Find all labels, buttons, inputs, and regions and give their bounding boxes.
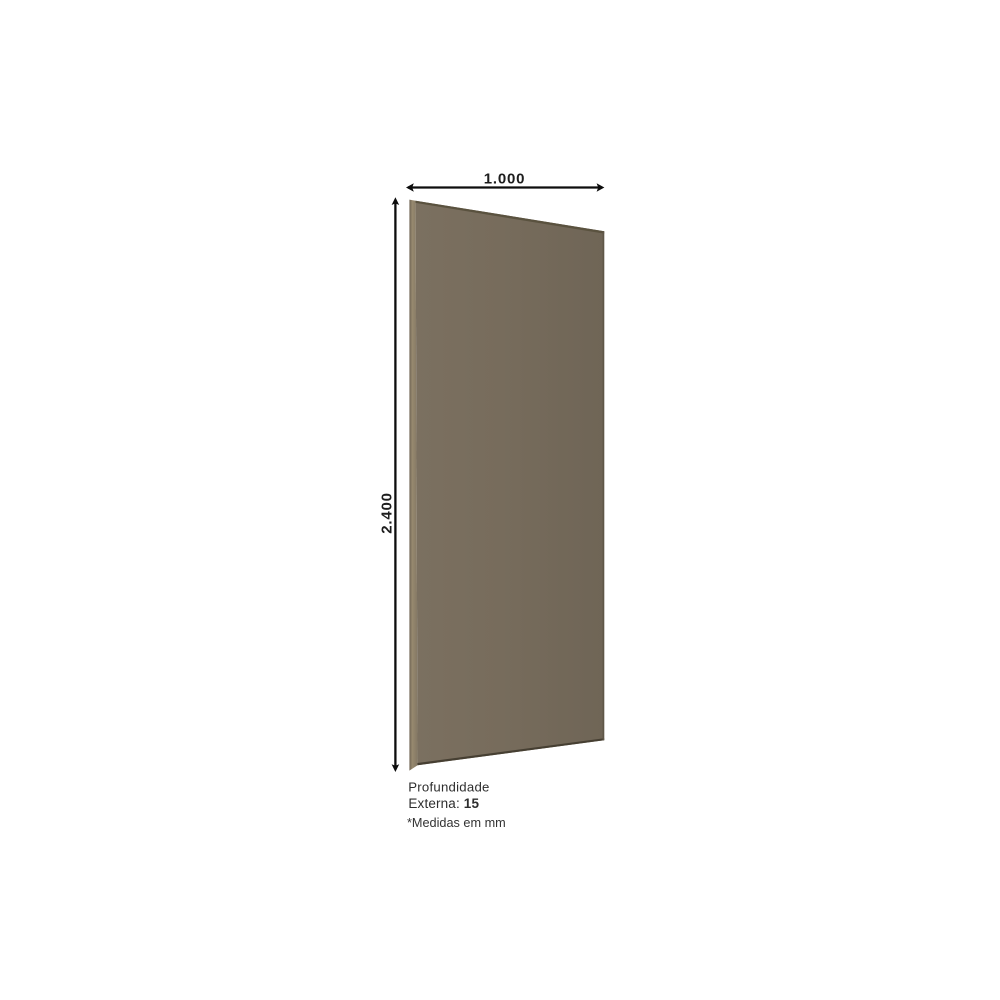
svg-text:*Medidas em mm: *Medidas em mm — [407, 816, 506, 830]
svg-text:2.400: 2.400 — [379, 492, 396, 534]
svg-text:Profundidade: Profundidade — [408, 780, 489, 795]
svg-text:Externa: 15: Externa: 15 — [408, 796, 479, 811]
svg-text:1.000: 1.000 — [484, 171, 526, 188]
